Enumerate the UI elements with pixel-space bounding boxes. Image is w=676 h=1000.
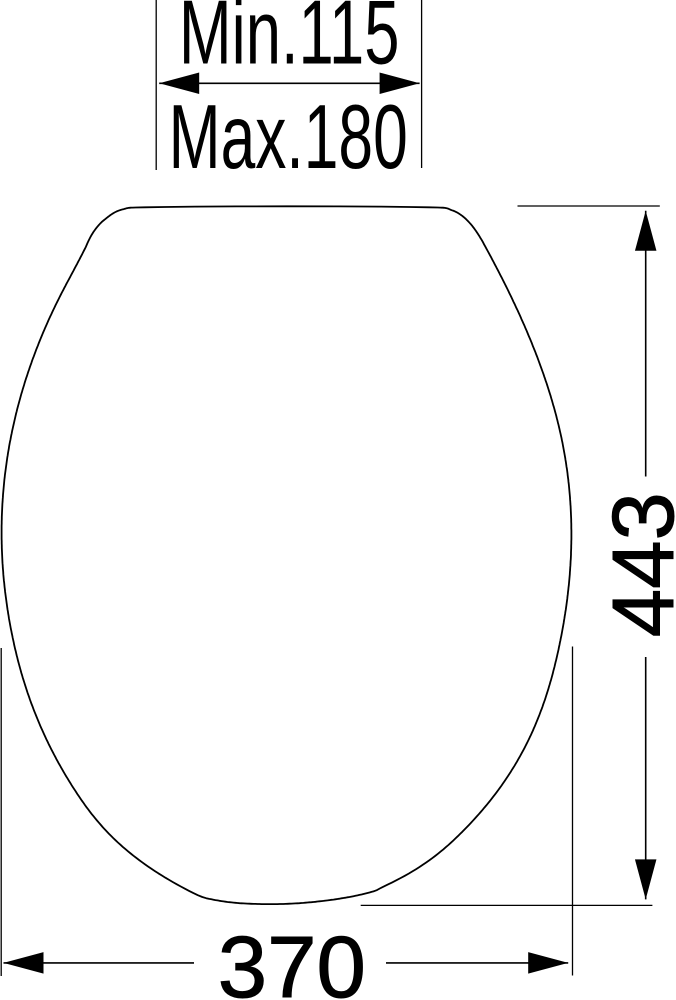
svg-text:Min.115: Min.115 xyxy=(179,0,400,83)
svg-text:Max.180: Max.180 xyxy=(169,85,408,188)
svg-text:370: 370 xyxy=(218,918,366,1000)
svg-text:443: 443 xyxy=(595,492,676,637)
